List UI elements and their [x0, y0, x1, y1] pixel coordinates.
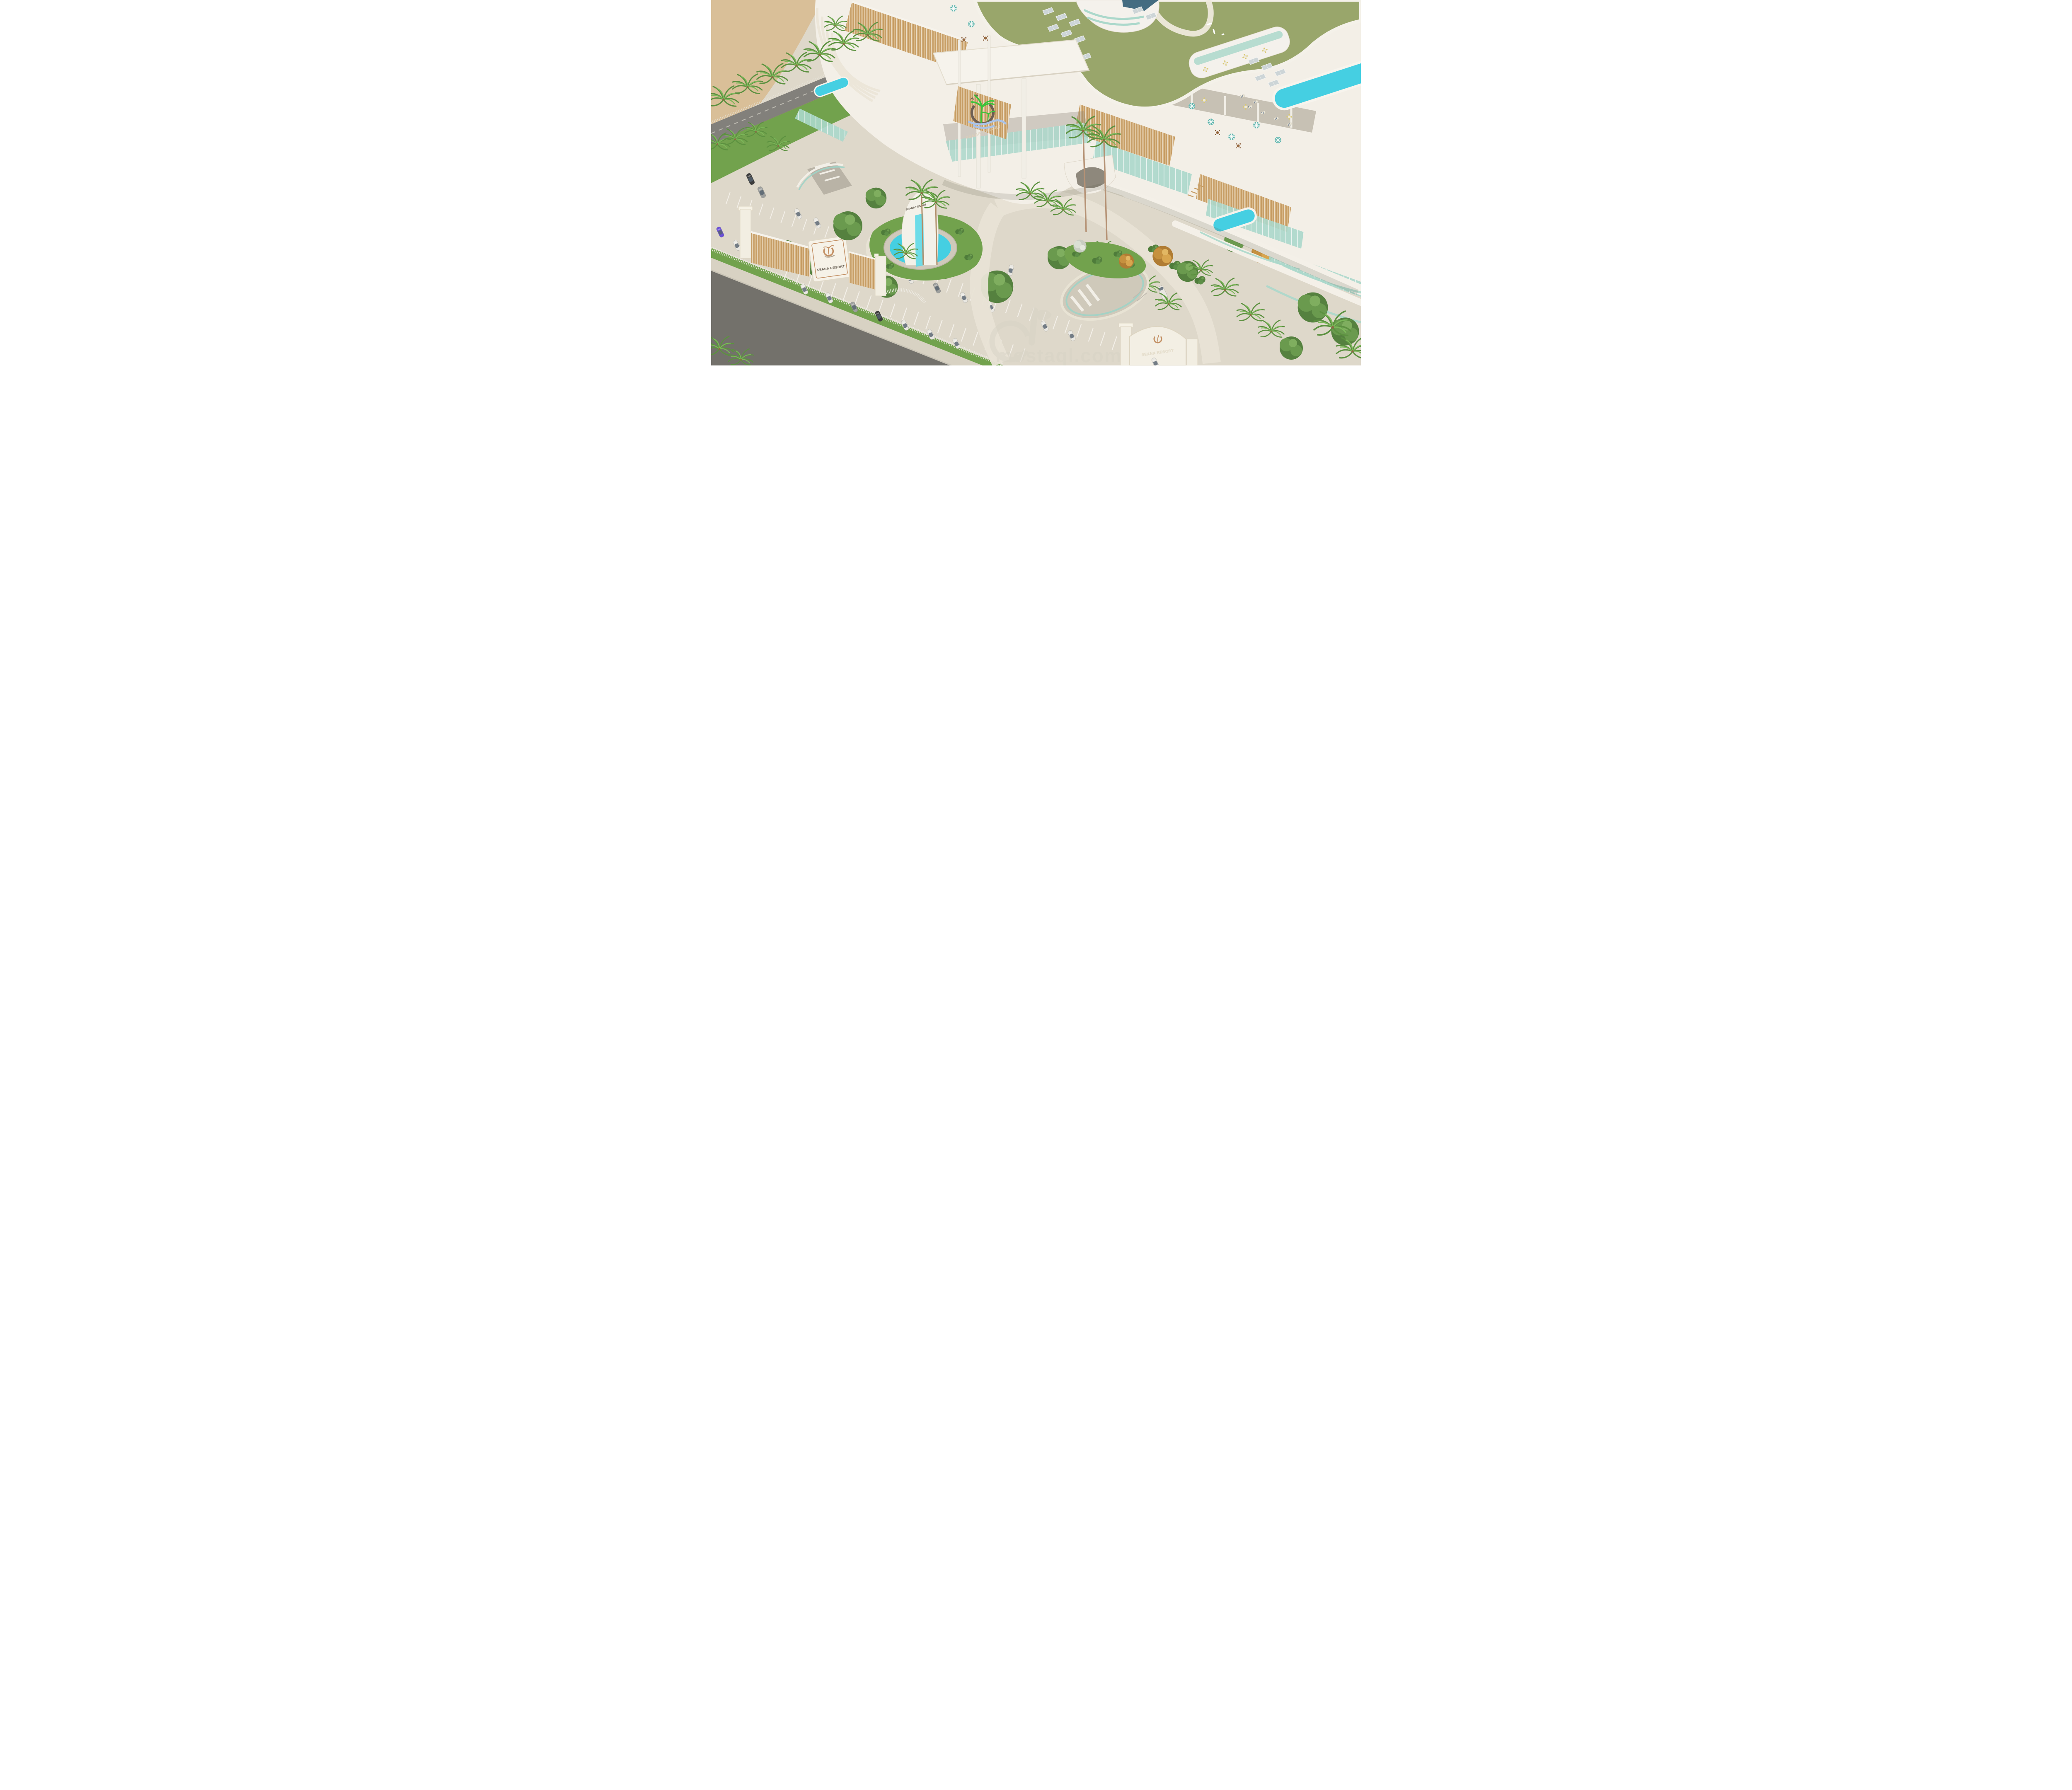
umbrella	[1253, 122, 1260, 128]
gate-tree	[866, 188, 886, 208]
umbrella	[1188, 103, 1195, 109]
autumn-tree	[1152, 246, 1173, 266]
umbrella	[1228, 133, 1235, 140]
sign-board	[808, 236, 851, 282]
umbrella	[950, 5, 957, 12]
canopy-column	[1022, 79, 1026, 178]
flowering-tree	[1073, 239, 1086, 252]
gate-pillar	[875, 256, 886, 296]
tree	[1298, 293, 1328, 323]
gate-pillar	[1187, 339, 1198, 365]
umbrella	[1275, 137, 1281, 143]
render-canvas: SEANA RESORT	[711, 0, 1361, 365]
umbrella	[1208, 119, 1214, 125]
umbrella	[968, 21, 975, 27]
resort-rendering: SEANA RESORT	[711, 0, 1361, 365]
tree	[1280, 336, 1303, 360]
tree	[1177, 261, 1198, 282]
autumn-tree	[1119, 254, 1134, 268]
gate-tree	[833, 211, 862, 240]
watermark-text: mostaql.com	[995, 345, 1122, 365]
gate-sign-panel: SEANA RESORT	[808, 236, 851, 282]
south-gate-arch	[1130, 327, 1186, 365]
gate-pillar	[740, 209, 751, 258]
